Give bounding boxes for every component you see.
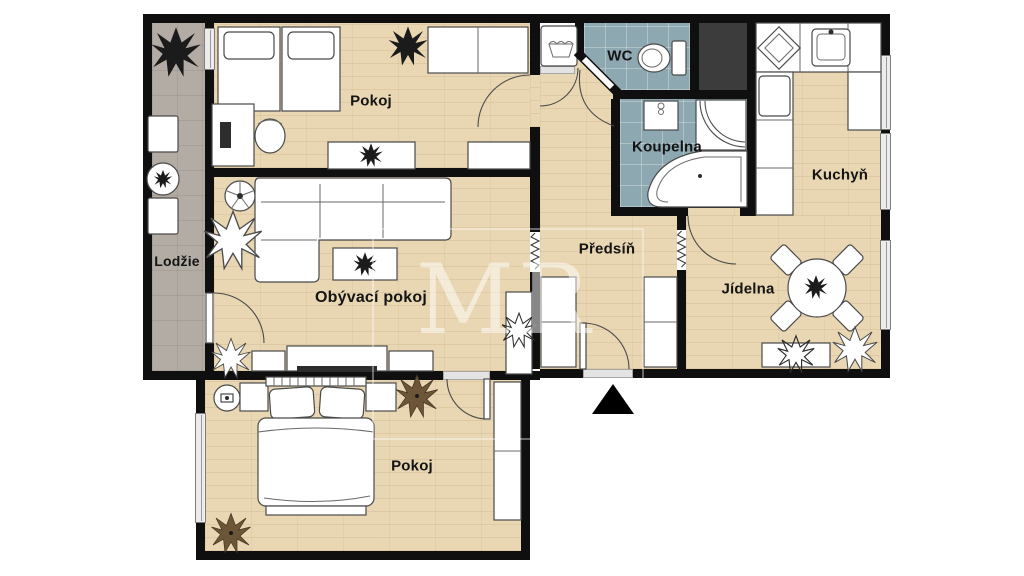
loggia-chair [148, 198, 178, 234]
bathroom-furniture [644, 100, 747, 264]
pillow [288, 32, 334, 59]
folding-door-icon [678, 231, 686, 267]
pillow [319, 387, 365, 420]
duvet [258, 418, 374, 506]
headboard [266, 377, 366, 386]
door-arc [540, 68, 578, 106]
door-arc [688, 216, 736, 264]
door-arc [478, 75, 530, 127]
monitor-icon [220, 122, 231, 148]
room-label-pokoj-top: Pokoj [350, 93, 392, 110]
dining-furniture [762, 244, 877, 372]
room-label-predsin: Předsíň [579, 241, 635, 258]
door-leaf [206, 293, 213, 343]
kitchen-furniture [756, 23, 881, 215]
desk [212, 104, 254, 166]
bed-foot [266, 506, 366, 515]
door-arc [214, 293, 264, 343]
kitchen-counter [848, 72, 881, 130]
loggia-chair [148, 116, 178, 152]
sideboard [468, 142, 530, 169]
pillow [269, 387, 315, 420]
desk-chair [255, 119, 285, 153]
room-label-obyvaci-pokoj: Obývací pokoj [315, 289, 427, 307]
watermark-text: MR [416, 244, 595, 356]
loggia-furniture [147, 27, 201, 234]
plant-icon [389, 27, 428, 66]
floor-plan: MR [0, 0, 1024, 576]
room-label-wc: WC [607, 48, 632, 65]
plant-icon [151, 27, 200, 76]
plant-icon [212, 339, 251, 378]
shower-icon [696, 100, 746, 150]
nightstand [240, 383, 268, 411]
sink-icon [644, 101, 678, 130]
tv-cabinet [252, 351, 285, 371]
toilet-icon [638, 44, 670, 72]
tv-icon [297, 366, 377, 372]
plant-icon [833, 327, 877, 371]
room-label-koupelna: Koupelna [632, 139, 702, 156]
room-label-pokoj-bottom: Pokoj [391, 458, 433, 475]
room-label-jidelna: Jídelna [721, 281, 774, 298]
washing-machine-icon [541, 26, 577, 66]
room-label-lodzie: Lodžie [154, 253, 200, 269]
plant-icon [204, 211, 261, 268]
fridge-icon [759, 76, 790, 116]
toilet-tank [672, 41, 686, 75]
pillow [224, 32, 274, 59]
room-label-kuchyn: Kuchyň [812, 167, 868, 184]
